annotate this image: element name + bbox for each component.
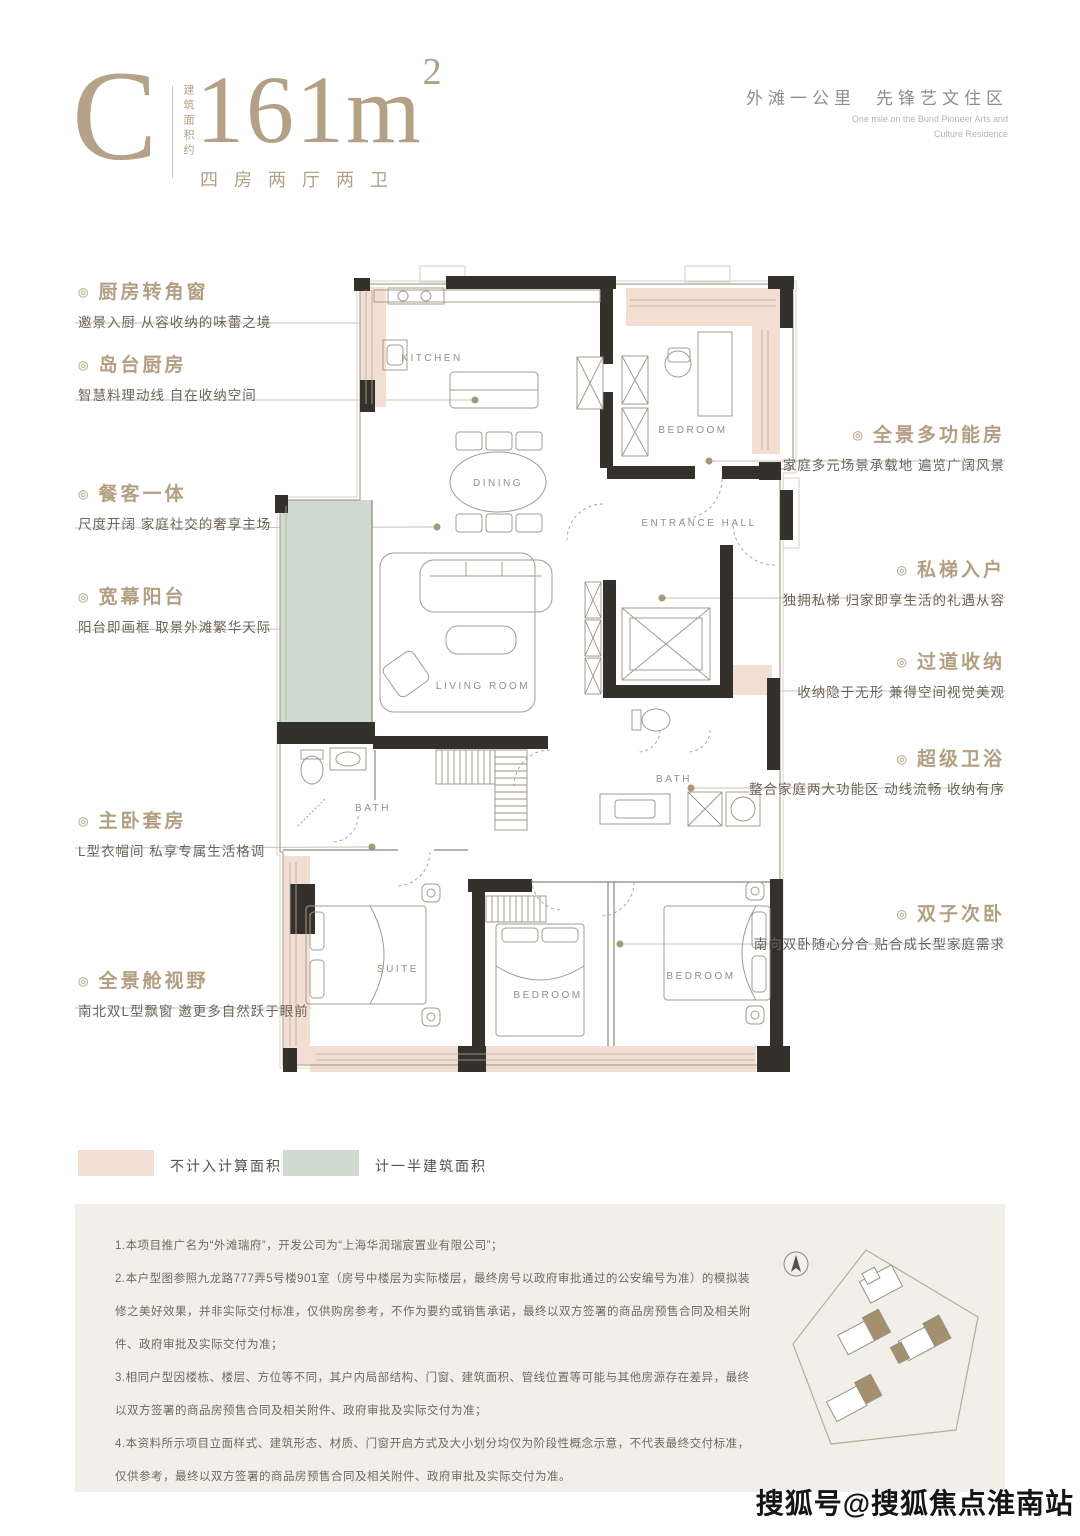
disclaimer-item-2: 2.本户型图参照九龙路777弄5号楼901室（房号中楼层为实际楼层，最终房号以政…	[115, 1263, 760, 1362]
site-plan-svg	[763, 1222, 1013, 1472]
ring-bullet-icon: ◎	[897, 655, 910, 669]
note-desc: L型衣帽间 私享专属生活格调	[78, 840, 378, 860]
note-private-elevator: ◎私梯入户 独拥私梯 归家即享生活的礼遇从容	[675, 555, 1005, 609]
room-label-dining: DINING	[473, 478, 523, 489]
note-twin-bedrooms: ◎双子次卧 南向双卧随心分合 贴合成长型家庭需求	[675, 899, 1005, 953]
area-caption-vertical: 建筑面积约	[180, 84, 196, 159]
note-desc: 南向双卧随心分合 贴合成长型家庭需求	[675, 933, 1005, 953]
note-super-bathroom: ◎超级卫浴 整合家庭两大功能区 动线流畅 收纳有序	[675, 744, 1005, 798]
note-panorama-view: ◎全景舱视野 南北双L型飘窗 邀更多自然跃于眼前	[78, 966, 378, 1020]
site-plan	[763, 1222, 1013, 1472]
note-desc: 整合家庭两大功能区 动线流畅 收纳有序	[675, 778, 1005, 798]
note-desc: 收纳隐于无形 兼得空间视觉美观	[675, 681, 1005, 701]
legend-swatch-pink	[78, 1150, 154, 1176]
area-number: 161m	[196, 56, 423, 163]
note-island-kitchen: ◎岛台厨房 智慧料理动线 自在收纳空间	[78, 350, 378, 404]
area-value: 161m2	[196, 52, 442, 163]
note-multifunction-room: ◎全景多功能房 家庭多元场景承载地 遍览广阔风景	[675, 420, 1005, 474]
room-count-caption: 四房两厅两卫	[200, 166, 404, 192]
room-label-suite: SUITE	[377, 964, 419, 975]
ring-bullet-icon: ◎	[78, 590, 91, 604]
tagline-part-2: 先锋艺文住区	[876, 89, 1008, 108]
note-title: ◎超级卫浴	[675, 744, 1005, 771]
site-buildings	[825, 1260, 951, 1422]
ring-bullet-icon: ◎	[78, 358, 91, 372]
ring-bullet-icon: ◎	[78, 974, 91, 988]
note-desc: 独拥私梯 归家即享生活的礼遇从容	[675, 589, 1005, 609]
ring-bullet-icon: ◎	[853, 428, 866, 442]
disclaimer-box: 1.本项目推广名为“外滩瑞府”，开发公司为“上海华润瑞宸置业有限公司”； 2.本…	[75, 1204, 1005, 1492]
project-tagline: 外滩一公里先锋艺文住区	[746, 84, 1008, 109]
note-dining-living: ◎餐客一体 尺度开阔 家庭社交的奢享主场	[78, 479, 378, 533]
disclaimer-item-1: 1.本项目推广名为“外滩瑞府”，开发公司为“上海华润瑞宸置业有限公司”；	[115, 1230, 760, 1263]
room-label-kitchen: KITCHEN	[401, 353, 462, 364]
note-title: ◎私梯入户	[675, 555, 1005, 582]
note-desc: 家庭多元场景承载地 遍览广阔风景	[675, 454, 1005, 474]
area-superscript: 2	[423, 51, 442, 93]
ring-bullet-icon: ◎	[78, 285, 91, 299]
room-label-living: LIVING ROOM	[436, 681, 530, 692]
note-title: ◎过道收纳	[675, 647, 1005, 674]
note-desc: 阳台即画框 取景外滩繁华天际	[78, 616, 378, 636]
note-desc: 邀景入厨 从容收纳的味蕾之境	[78, 311, 378, 331]
note-title: ◎全景多功能房	[675, 420, 1005, 447]
note-title: ◎岛台厨房	[78, 350, 378, 377]
note-wide-balcony: ◎宽幕阳台 阳台即画框 取景外滩繁华天际	[78, 582, 378, 636]
compass-icon	[784, 1252, 808, 1276]
note-desc: 南北双L型飘窗 邀更多自然跃于眼前	[78, 1000, 378, 1020]
project-tagline-english: One mile on the Bund Pioneer Arts and Cu…	[852, 112, 1008, 142]
room-label-bedroom-mid: BEDROOM	[513, 990, 582, 1001]
room-label-bedroom-right: BEDROOM	[666, 971, 735, 982]
note-title: ◎双子次卧	[675, 899, 1005, 926]
note-title: ◎餐客一体	[78, 479, 378, 506]
ring-bullet-icon: ◎	[78, 814, 91, 828]
ring-bullet-icon: ◎	[897, 907, 910, 921]
ring-bullet-icon: ◎	[897, 563, 910, 577]
note-title: ◎主卧套房	[78, 806, 378, 833]
legend-label-pink: 不计入计算面积	[170, 1156, 282, 1176]
watermark-text: 搜狐号@搜狐焦点淮南站	[756, 1482, 1074, 1522]
note-title: ◎宽幕阳台	[78, 582, 378, 609]
floorplan-page: C 建筑面积约 161m2 四房两厅两卫 外滩一公里先锋艺文住区 One mil…	[0, 0, 1080, 1536]
ring-bullet-icon: ◎	[897, 752, 910, 766]
note-kitchen-corner-window: ◎厨房转角窗 邀景入厨 从容收纳的味蕾之境	[78, 277, 378, 331]
legend-label-green: 计一半建筑面积	[375, 1156, 487, 1176]
disclaimer-text: 1.本项目推广名为“外滩瑞府”，开发公司为“上海华润瑞宸置业有限公司”； 2.本…	[115, 1230, 760, 1494]
legend-swatch-green	[283, 1150, 359, 1176]
note-master-suite: ◎主卧套房 L型衣帽间 私享专属生活格调	[78, 806, 378, 860]
note-title: ◎全景舱视野	[78, 966, 378, 993]
unit-type-letter: C	[72, 52, 157, 180]
tagline-en-line2: Culture Residence	[852, 127, 1008, 142]
ring-bullet-icon: ◎	[78, 487, 91, 501]
header-divider	[172, 86, 173, 178]
tagline-part-1: 外滩一公里	[746, 89, 856, 108]
tagline-en-line1: One mile on the Bund Pioneer Arts and	[852, 112, 1008, 127]
room-label-entrance-hall: ENTRANCE HALL	[641, 518, 756, 529]
disclaimer-item-4: 4.本资料所示项目立面样式、建筑形态、材质、门窗开启方式及大小划分均仅为阶段性概…	[115, 1428, 760, 1494]
note-desc: 智慧料理动线 自在收纳空间	[78, 384, 378, 404]
note-title: ◎厨房转角窗	[78, 277, 378, 304]
disclaimer-item-3: 3.相同户型因楼栋、楼层、方位等不同，其户内局部结构、门窗、建筑面积、管线位置等…	[115, 1362, 760, 1428]
note-hallway-storage: ◎过道收纳 收纳隐于无形 兼得空间视觉美观	[675, 647, 1005, 701]
note-desc: 尺度开阔 家庭社交的奢享主场	[78, 513, 378, 533]
